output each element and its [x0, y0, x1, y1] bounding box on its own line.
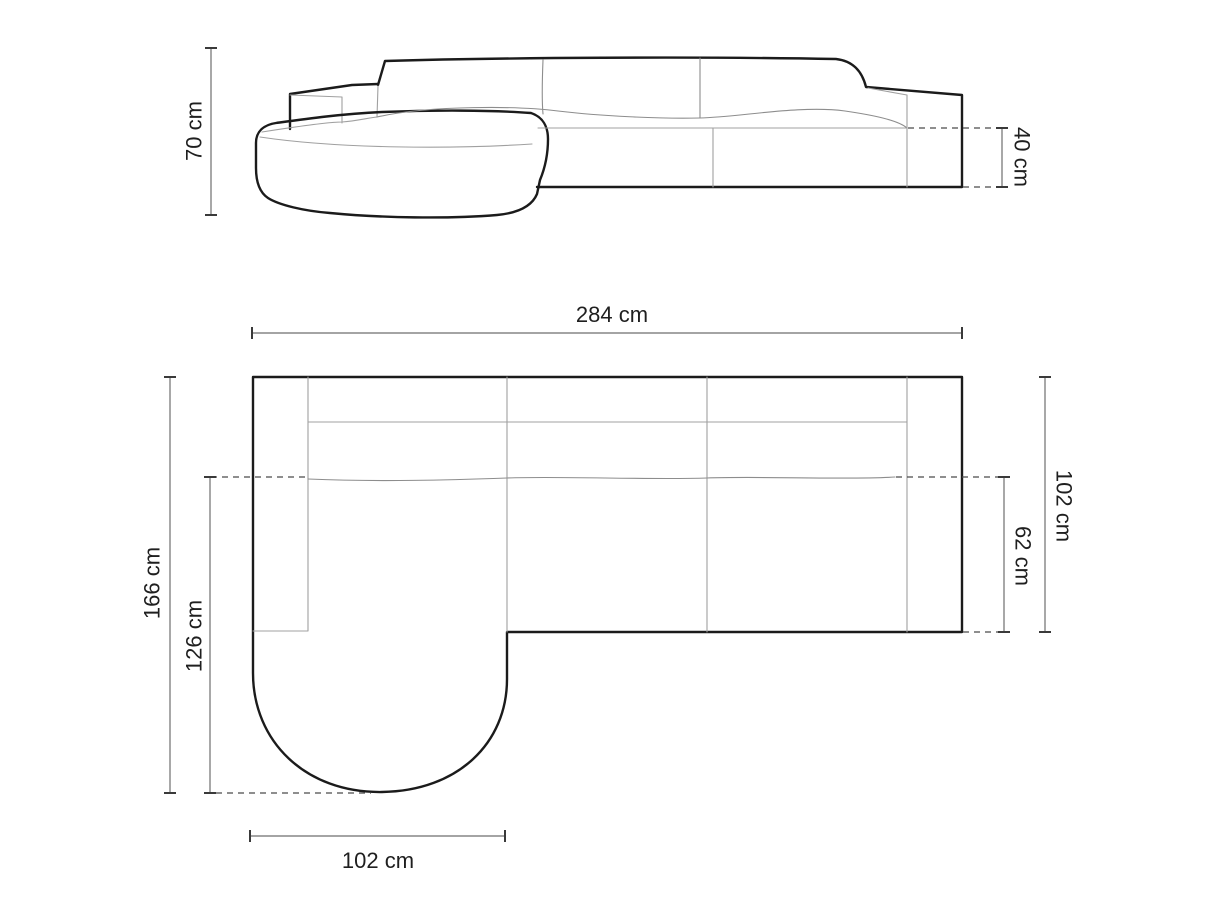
chaise-depth-dimension-label: 126 cm — [182, 600, 207, 672]
seat-depth-dimension-label: 62 cm — [1011, 526, 1036, 586]
chaise-top-back-edge — [262, 117, 377, 132]
chaise-depth-reference-dashes — [211, 477, 371, 793]
overall-width-dimension-label: 284 cm — [576, 302, 648, 327]
sofa-body-outline — [378, 58, 962, 187]
chaise-pad-seam — [260, 137, 532, 147]
seat-depth-reference-dashes — [896, 477, 1004, 632]
plan-left-armrest-lines — [253, 377, 308, 631]
backrest-seam-left — [542, 60, 543, 114]
seat-height-reference-dashes — [908, 128, 1002, 187]
chaise-width-dimension-label: 102 cm — [342, 848, 414, 873]
right-armrest-inner-edges — [868, 88, 907, 187]
plan-outline — [253, 377, 962, 792]
front-elevation-view — [256, 58, 962, 218]
plan-cushion-front-line — [308, 477, 895, 481]
technical-drawing-canvas: 70 cm 40 cm 284 cm 166 cm 126 cm 62 — [0, 0, 1214, 911]
overall-height-dimension-label: 70 cm — [182, 101, 207, 161]
top-plan-view — [253, 377, 962, 792]
overall-depth-dimension-label: 166 cm — [140, 547, 165, 619]
sofa-dimension-drawing: 70 cm 40 cm 284 cm 166 cm 126 cm 62 — [0, 0, 1214, 911]
sofa-depth-dimension-label: 102 cm — [1052, 470, 1077, 542]
top-plan-dimensions: 284 cm 166 cm 126 cm 62 cm 102 cm 102 cm — [140, 302, 1077, 873]
seat-height-dimension-label: 40 cm — [1010, 127, 1035, 187]
